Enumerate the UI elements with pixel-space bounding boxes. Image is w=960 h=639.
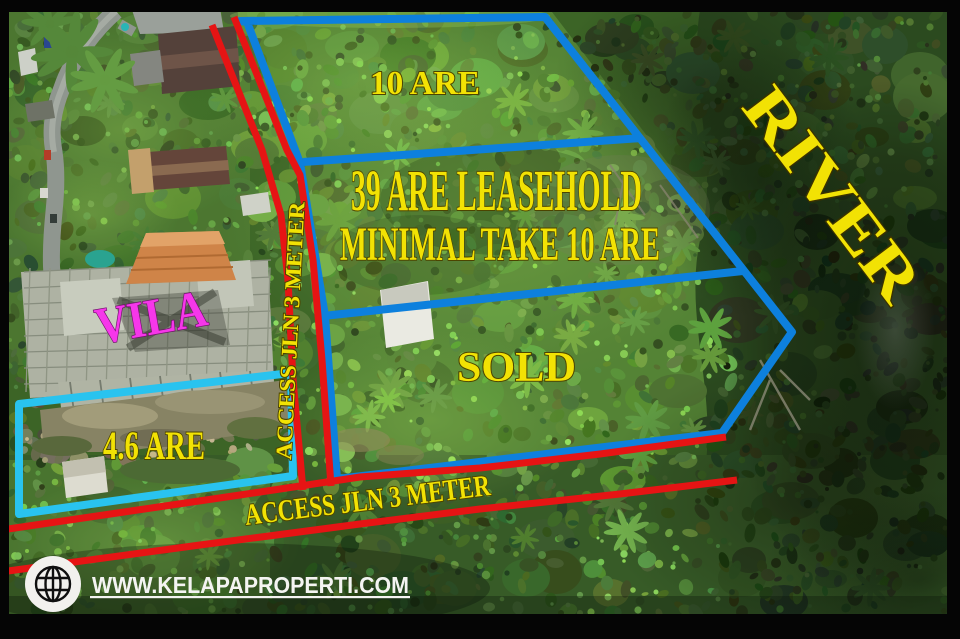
svg-text:SOLD: SOLD bbox=[457, 345, 576, 391]
svg-text:39 ARE LEASEHOLD: 39 ARE LEASEHOLD bbox=[351, 158, 642, 223]
svg-text:4.6 ARE: 4.6 ARE bbox=[103, 423, 205, 468]
svg-text:10 ARE: 10 ARE bbox=[370, 65, 480, 102]
svg-text:MINIMAL TAKE 10 ARE: MINIMAL TAKE 10 ARE bbox=[340, 218, 660, 271]
svg-text:WWW.KELAPAPROPERTI.COM: WWW.KELAPAPROPERTI.COM bbox=[92, 572, 409, 598]
